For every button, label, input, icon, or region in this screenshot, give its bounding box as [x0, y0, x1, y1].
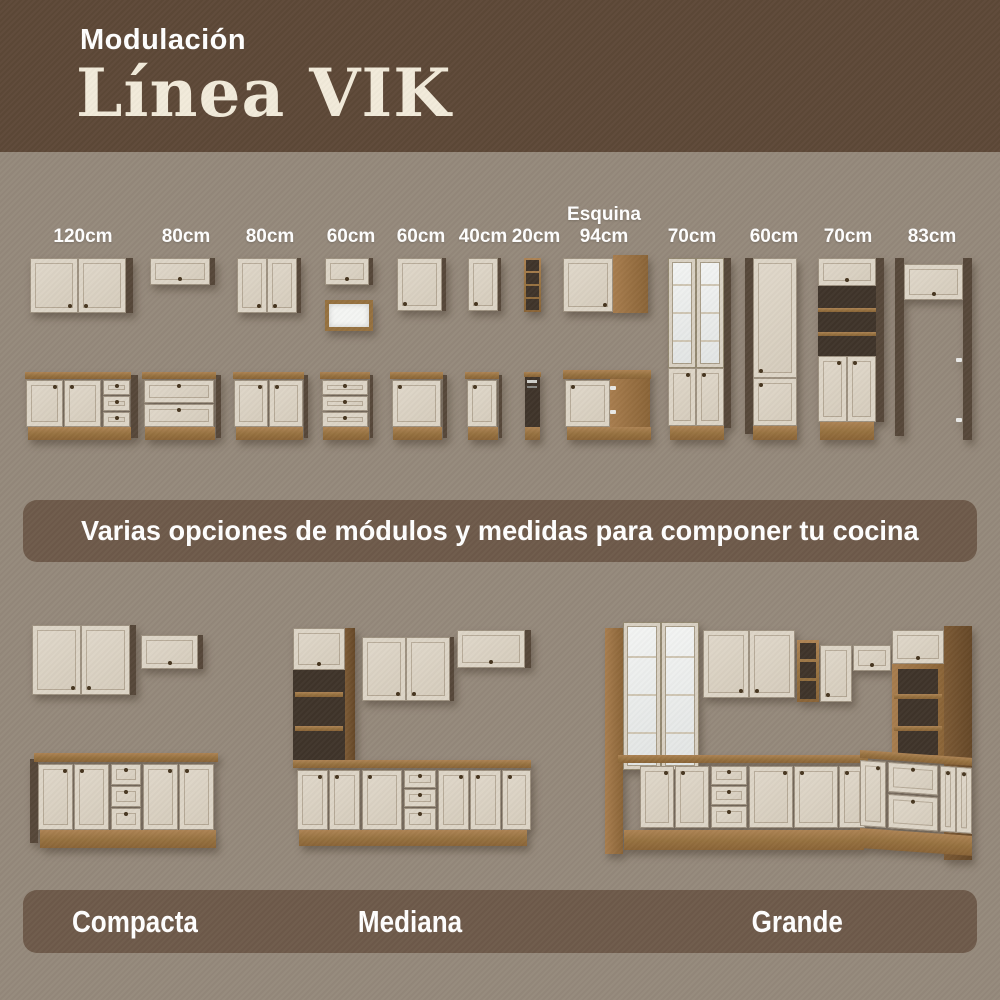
cabinet-door [565, 380, 610, 427]
cabinet-door [468, 258, 498, 311]
cabinet-door [563, 258, 613, 312]
glass-shelf [666, 656, 694, 658]
cabinet-door [818, 356, 847, 422]
size-label-83cm: 83cm [892, 200, 972, 248]
drawer [888, 762, 938, 795]
towel-rail [527, 380, 537, 383]
cabinet-door [668, 368, 696, 426]
shelf-niche [800, 643, 816, 659]
cabinet-flip-door [150, 258, 210, 285]
cabinet-side-panel [130, 625, 136, 695]
cabinet-side-panel [745, 258, 753, 434]
cabinet-side-panel [443, 375, 447, 438]
base-run-left [618, 755, 868, 852]
wood-shelf [295, 692, 343, 697]
cabinet-flip-door [141, 635, 198, 669]
cabinet-door [237, 258, 267, 313]
glass-shelf [673, 340, 691, 342]
size-label-value: 83cm [908, 226, 957, 248]
cabinet-door [26, 380, 63, 427]
cabinet-side-panel [131, 375, 138, 438]
countertop [563, 370, 651, 379]
countertop [34, 753, 218, 762]
cabinet-door [362, 770, 402, 830]
size-label-value: 120cm [53, 226, 112, 248]
cabinet-door [179, 764, 214, 830]
glass-shelf [666, 732, 694, 734]
cabinet-door [64, 380, 101, 427]
set-label-text: Mediana [358, 904, 462, 940]
cabinet-side-panel [724, 258, 731, 428]
drawer [322, 412, 368, 427]
cabinet-door [703, 630, 749, 698]
module-tall-60cm-pantry [745, 258, 801, 440]
cabinet-side-panel [126, 258, 133, 313]
cabinet-flip-door [853, 645, 891, 671]
countertop [390, 372, 443, 379]
page-title: Línea VIK [76, 54, 452, 132]
cabinet-door [860, 760, 886, 828]
module-wall-60cm-door [397, 258, 446, 311]
banner-text: Varias opciones de módulos y medidas par… [81, 515, 919, 547]
plinth [28, 427, 131, 440]
size-label-80cm-a: 80cm [146, 200, 226, 248]
drawer [711, 766, 747, 785]
cabinet-door [640, 766, 674, 828]
glass-shelf [628, 732, 656, 734]
cabinet-door [30, 258, 78, 313]
cabinet-door [297, 770, 328, 830]
glass-shelf [673, 312, 691, 314]
plinth [567, 427, 651, 440]
size-label-120cm: 120cm [43, 200, 123, 248]
set-label-grande: Grande [697, 890, 897, 953]
cabinet-side-panel [216, 375, 221, 438]
module-wall-80cm [237, 258, 301, 313]
cabinet-door [956, 767, 972, 834]
module-tall-70cm-display [668, 258, 731, 440]
open-shelf-section [818, 286, 876, 356]
module-wall-60cm-open-niche [325, 300, 373, 331]
module-base-esquina-94cm [563, 370, 655, 440]
drawer [322, 396, 368, 411]
drawer [144, 404, 214, 427]
cabinet-side-panel [450, 637, 454, 701]
shelf-niche [526, 260, 539, 271]
shelf-niche [898, 669, 938, 755]
pullout-interior [525, 377, 540, 427]
glass-shelf [701, 284, 719, 286]
plinth [525, 427, 540, 440]
module-wall-120cm [30, 258, 133, 313]
module-wall-40cm-door [468, 258, 501, 311]
cabinet-door [362, 637, 406, 701]
drawer [111, 808, 141, 830]
glass-shelf [628, 694, 656, 696]
cabinet-door [675, 766, 709, 828]
cabinet-door [753, 378, 797, 426]
cabinet-flip-door [457, 630, 525, 668]
hinge [610, 410, 616, 414]
drawer [322, 380, 368, 395]
cabinet-side-panel [297, 258, 301, 313]
module-base-60cm-drawers [320, 372, 373, 440]
corner-wood-box [613, 255, 648, 313]
size-label-value: 20cm [512, 226, 561, 248]
hinge [956, 358, 962, 362]
corner-wood-box [610, 379, 650, 428]
cabinet-side-panel [963, 258, 972, 440]
cabinet-side-panel [370, 375, 373, 438]
cabinet-door [847, 356, 876, 422]
glass-shelf [701, 312, 719, 314]
size-label-value: 60cm [750, 226, 799, 248]
cabinet-door [820, 645, 852, 702]
poster-canvas: Modulación Línea VIK 120cm 80cm 80cm 60c… [0, 0, 1000, 1000]
bridge-cabinet-door [904, 264, 963, 300]
cabinet-door [753, 258, 797, 378]
cabinet-side-panel [198, 635, 203, 669]
cabinet-door [78, 258, 126, 313]
size-label-70cm-a: 70cm [652, 200, 732, 248]
towel-rail [527, 386, 537, 388]
cabinet-door [794, 766, 838, 828]
wood-shelf [818, 308, 876, 312]
cabinet-side-panel [499, 375, 502, 438]
plinth [753, 426, 797, 440]
drawer [103, 412, 130, 427]
cabinet-side-panel [525, 630, 531, 668]
glass-door [668, 258, 696, 368]
cabinet-side-panel [442, 258, 446, 311]
size-label-70cm-b: 70cm [808, 200, 888, 248]
shelf-niche [526, 273, 539, 284]
drawer [404, 789, 436, 807]
open-niche [325, 300, 373, 331]
cabinet-flip-door [325, 258, 369, 285]
tower-side-panel [345, 628, 355, 760]
cabinet-door [32, 625, 81, 695]
module-base-80cm-doors [233, 372, 308, 440]
cabinet-door [81, 625, 130, 695]
module-base-120cm [25, 372, 138, 440]
module-tall-70cm-tower [818, 258, 884, 440]
module-base-20cm-pullout [524, 372, 541, 440]
drawer [711, 786, 747, 805]
cabinet-door [892, 630, 944, 664]
plinth [323, 427, 369, 440]
drawer [888, 794, 938, 831]
cabinet-side-panel [304, 375, 308, 438]
cabinet-door [267, 258, 297, 313]
cabinet-door [406, 637, 450, 701]
size-label-value: 80cm [162, 226, 211, 248]
module-wall-80cm-flip [150, 258, 215, 285]
glass-door [696, 258, 724, 368]
plinth [820, 422, 874, 440]
cabinet-door [749, 630, 795, 698]
glass-shelf [701, 340, 719, 342]
size-label-value: 94cm [580, 226, 629, 248]
cabinet-side-panel [876, 258, 884, 422]
drawer [404, 770, 436, 788]
size-label-topline: Esquina [567, 204, 641, 226]
size-label-80cm-b: 80cm [230, 200, 310, 248]
set-label-compacta: Compacta [35, 890, 235, 953]
cabinet-door [438, 770, 469, 830]
drawer [404, 808, 436, 830]
cabinet-side-panel [369, 258, 373, 285]
module-wall-20cm-shelf [524, 258, 541, 312]
drawer [103, 396, 130, 411]
plinth [393, 427, 442, 440]
countertop [465, 372, 499, 379]
kitchen-set-mediana [293, 628, 533, 848]
cabinet-door [143, 764, 178, 830]
drawer [111, 764, 141, 785]
countertop [320, 372, 370, 379]
cabinet-door [329, 770, 360, 830]
countertop [25, 372, 131, 379]
size-label-value: 70cm [824, 226, 873, 248]
glass-door [661, 622, 699, 770]
wood-shelf [295, 726, 343, 731]
cabinet-door [940, 766, 956, 833]
drawer [111, 786, 141, 807]
glass-shelf [673, 284, 691, 286]
hinge [610, 386, 616, 390]
cabinet-door [467, 380, 497, 427]
cabinet-side-panel [895, 258, 904, 436]
cabinet-door [234, 380, 268, 427]
open-shelf-tower [293, 670, 345, 760]
cabinet-door [392, 380, 441, 427]
cabinet-door [74, 764, 109, 830]
base-run-right [860, 750, 972, 864]
wood-shelf [894, 694, 942, 699]
size-label-60cm-a: 60cm [311, 200, 391, 248]
plinth [468, 427, 498, 440]
module-wall-60cm-flip [325, 258, 373, 285]
drawer [103, 380, 130, 395]
open-shelf-tower [892, 664, 944, 760]
cabinet-door [502, 770, 531, 830]
cabinet-door [749, 766, 793, 828]
header-kicker: Modulación [80, 24, 246, 57]
cabinet-door [38, 764, 73, 830]
cabinet-door [269, 380, 303, 427]
module-base-40cm-door [465, 372, 502, 440]
countertop [142, 372, 216, 379]
wood-shelf [894, 726, 942, 731]
glass-shelf [628, 656, 656, 658]
plinth [40, 830, 216, 848]
plinth [670, 426, 724, 440]
cabinet-side-panel [30, 759, 38, 843]
kitchen-set-grande [605, 622, 972, 862]
module-base-80cm-drawers [142, 372, 221, 440]
cabinet-side-panel [498, 258, 501, 311]
cabinet-side-panel [210, 258, 215, 285]
cabinet-door [470, 770, 501, 830]
plinth [299, 830, 527, 846]
plinth [236, 427, 303, 440]
size-label-esquina-94cm: Esquina94cm [564, 200, 644, 248]
set-label-text: Grande [751, 904, 842, 940]
header-band: Modulación Línea VIK [0, 0, 1000, 152]
size-label-value: 60cm [397, 226, 446, 248]
cabinet-door [397, 258, 442, 311]
shelf-niche [800, 662, 816, 678]
set-label-mediana: Mediana [310, 890, 510, 953]
plinth [624, 830, 864, 850]
plinth [145, 427, 215, 440]
countertop [233, 372, 304, 379]
cabinet-flip-door [818, 258, 876, 286]
set-label-text: Compacta [72, 904, 198, 940]
bottom-bar: Compacta Mediana Grande [23, 890, 977, 953]
module-83cm-fridge-surround [895, 258, 972, 440]
module-base-60cm-door [390, 372, 447, 440]
hinge [956, 418, 962, 422]
size-label-value: 60cm [327, 226, 376, 248]
glass-shelf [666, 694, 694, 696]
shelf-niche [526, 299, 539, 310]
glass-door [623, 622, 661, 770]
kitchen-set-compacta [30, 625, 220, 848]
shelf-niche [800, 681, 816, 699]
countertop [618, 755, 868, 763]
module-wall-esquina-94cm [563, 255, 648, 313]
corner-open-shelf [797, 640, 819, 702]
drawer [711, 806, 747, 828]
drawer [144, 380, 214, 403]
countertop [293, 760, 531, 768]
wood-shelf [818, 332, 876, 336]
shelf-niche [526, 286, 539, 297]
size-label-60cm-c: 60cm [734, 200, 814, 248]
cabinet-door [696, 368, 724, 426]
size-label-value: 80cm [246, 226, 295, 248]
size-label-value: 70cm [668, 226, 717, 248]
banner: Varias opciones de módulos y medidas par… [23, 500, 977, 562]
cabinet-door [293, 628, 345, 670]
